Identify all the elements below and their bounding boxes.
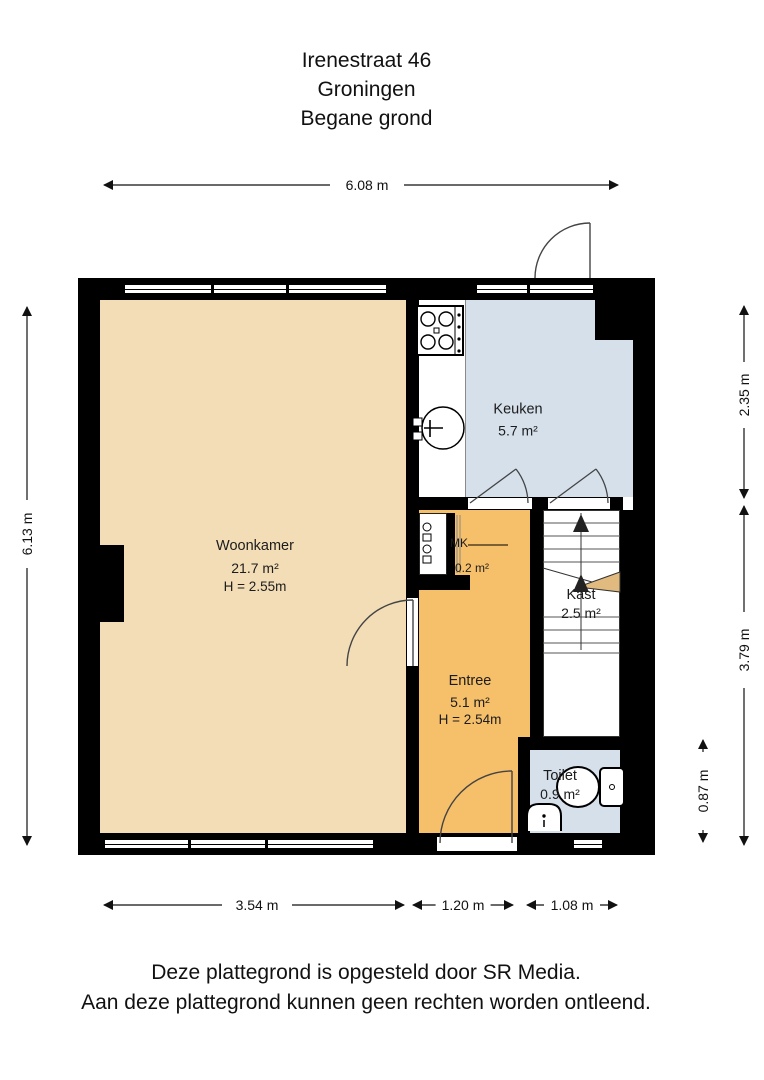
woonkamer-label: Woonkamer 21.7 m² H = 2.55m: [216, 538, 294, 594]
meterkast-box: [419, 513, 447, 575]
wall-corner-topright: [595, 278, 655, 340]
toilet-label: Toilet 0.9 m²: [540, 768, 580, 802]
room-kast-stairs: [543, 510, 620, 737]
window-toilet: [572, 838, 604, 850]
woonkamer-name: Woonkamer: [216, 538, 294, 554]
disclaimer-line-1: Deze plattegrond is opgesteld door SR Me…: [0, 958, 732, 988]
window-mullion: [188, 840, 191, 848]
dim-right-top: 2.35 m: [736, 368, 752, 423]
dim-right-inner: 0.87 m: [695, 764, 711, 819]
woonkamer-area: 21.7 m²: [216, 560, 294, 576]
toilet-name: Toilet: [540, 768, 580, 784]
wall-toilet-top: [518, 737, 620, 750]
entree-label: Entree 5.1 m² H = 2.54m: [439, 673, 502, 727]
keuken-area: 5.7 m²: [493, 423, 542, 439]
wall-right-lower: [620, 510, 655, 855]
keuken-label: Keuken 5.7 m²: [493, 402, 542, 439]
dim-bottom-middle: 1.20 m: [436, 897, 491, 913]
wall-kitchen-c: [610, 497, 623, 510]
title-address: Irenestraat 46: [78, 46, 655, 75]
wall-living-lower: [406, 666, 419, 833]
plan-title: Irenestraat 46 Groningen Begane grond: [78, 46, 655, 133]
title-city: Groningen: [78, 75, 655, 104]
window-kitchen-top: [475, 283, 595, 295]
wall-kitchen-b: [532, 497, 548, 510]
disclaimer-line-2: Aan deze plattegrond kunnen geen rechten…: [0, 988, 732, 1018]
mk-name: MK: [450, 536, 468, 550]
kitchen-counter: [419, 300, 466, 497]
disclaimer: Deze plattegrond is opgesteld door SR Me…: [0, 958, 732, 1018]
back-door-swing-icon: [535, 223, 590, 278]
wall-living-upper: [406, 300, 419, 598]
toilet-area: 0.9 m²: [540, 786, 580, 802]
entree-area: 5.1 m²: [439, 694, 502, 710]
wall-left-pier: [78, 545, 124, 622]
opening-kitchen-door-2: [548, 497, 610, 510]
opening-front-door: [437, 835, 517, 853]
window-mullion: [265, 840, 268, 848]
dim-total-depth: 6.13 m: [19, 507, 35, 562]
kast-area: 2.5 m²: [561, 605, 601, 621]
kast-label: Kast 2.5 m²: [561, 587, 601, 621]
window-living-bottom: [103, 838, 375, 850]
entree-name: Entree: [439, 673, 502, 689]
dim-right-middle: 3.79 m: [736, 623, 752, 678]
wall-entree-stairs: [530, 510, 543, 750]
floorplan-page: { "title": { "lines": ["Irenestraat 46",…: [0, 0, 764, 1080]
opening-kitchen-door-1: [468, 497, 532, 510]
wall-mk-bottom: [406, 575, 470, 590]
dim-total-width: 6.08 m: [340, 177, 395, 193]
keuken-name: Keuken: [493, 402, 542, 418]
woonkamer-height: H = 2.55m: [216, 579, 294, 594]
wall-toilet-left: [518, 750, 530, 833]
window-mullion: [211, 285, 214, 293]
wall-kitchen-a: [419, 497, 468, 510]
kast-name: Kast: [561, 587, 601, 603]
dim-bottom-right: 1.08 m: [545, 897, 600, 913]
entree-height: H = 2.54m: [439, 712, 502, 727]
window-mullion: [286, 285, 289, 293]
window-living-top: [123, 283, 388, 295]
dim-bottom-left: 3.54 m: [230, 897, 285, 913]
window-mullion: [527, 285, 530, 293]
title-floor: Begane grond: [78, 104, 655, 133]
mk-area: 0.2 m²: [455, 561, 489, 575]
opening-living-door: [406, 598, 419, 666]
